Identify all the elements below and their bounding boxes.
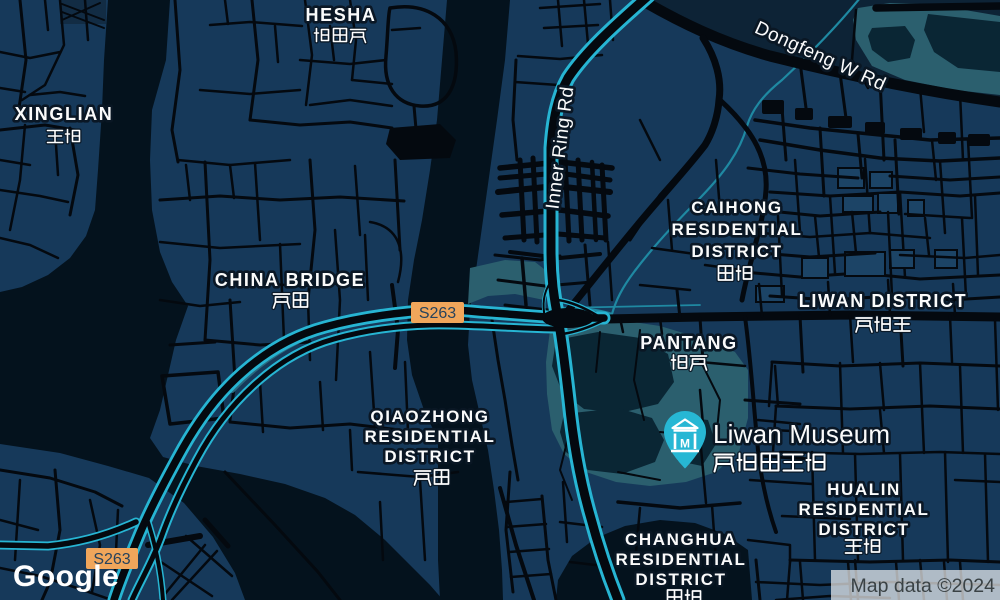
svg-text:HUALIN: HUALIN xyxy=(827,480,901,499)
svg-text:CHANGHUA: CHANGHUA xyxy=(625,530,737,549)
svg-text:CHINA BRIDGE: CHINA BRIDGE xyxy=(215,270,366,290)
svg-text:DISTRICT: DISTRICT xyxy=(818,520,909,539)
svg-text:S263: S263 xyxy=(419,305,456,322)
svg-text:DISTRICT: DISTRICT xyxy=(635,570,726,589)
svg-text:RESIDENTIAL: RESIDENTIAL xyxy=(799,500,930,519)
svg-text:M: M xyxy=(680,437,690,451)
svg-text:Google: Google xyxy=(13,560,119,593)
svg-text:RESIDENTIAL: RESIDENTIAL xyxy=(672,220,803,239)
svg-text:XINGLIAN: XINGLIAN xyxy=(15,104,114,124)
svg-text:LIWAN DISTRICT: LIWAN DISTRICT xyxy=(799,291,967,311)
svg-text:CAIHONG: CAIHONG xyxy=(691,198,782,217)
svg-text:DISTRICT: DISTRICT xyxy=(691,242,782,261)
svg-text:RESIDENTIAL: RESIDENTIAL xyxy=(365,427,496,446)
svg-text:PANTANG: PANTANG xyxy=(640,333,738,353)
svg-text:QIAOZHONG: QIAOZHONG xyxy=(370,407,489,426)
svg-text:RESIDENTIAL: RESIDENTIAL xyxy=(616,550,747,569)
svg-text:HESHA: HESHA xyxy=(305,5,376,25)
svg-text:DISTRICT: DISTRICT xyxy=(384,447,475,466)
svg-text:Map data ©2024: Map data ©2024 xyxy=(851,575,996,597)
svg-text:Liwan Museum: Liwan Museum xyxy=(713,419,890,449)
